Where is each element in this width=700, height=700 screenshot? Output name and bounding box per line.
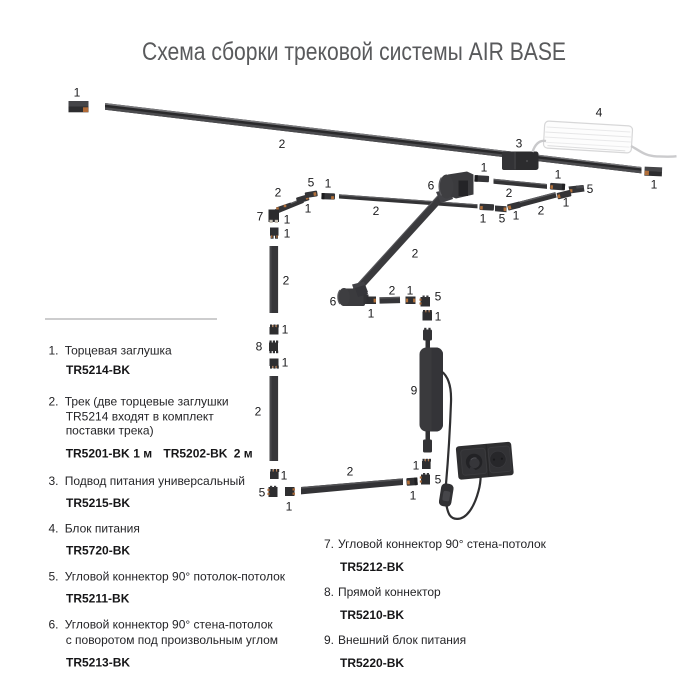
svg-text:Угловой коннектор 90° стена-по: Угловой коннектор 90° стена-потолок — [65, 618, 274, 632]
svg-text:Схема сборки трековой системы: Схема сборки трековой системы AIR BASE — [142, 38, 566, 66]
svg-text:6: 6 — [330, 295, 337, 309]
svg-text:5: 5 — [259, 486, 266, 500]
svg-text:1: 1 — [555, 168, 562, 182]
svg-text:Подвод питания универсальный: Подвод питания универсальный — [65, 474, 245, 488]
svg-text:4.: 4. — [49, 521, 59, 535]
svg-text:1: 1 — [480, 212, 487, 226]
svg-text:2.: 2. — [49, 395, 59, 409]
svg-text:2: 2 — [275, 186, 282, 200]
svg-text:2: 2 — [389, 284, 396, 298]
svg-text:TR5215-BK: TR5215-BK — [66, 496, 130, 510]
svg-text:2: 2 — [412, 247, 419, 261]
svg-text:1: 1 — [74, 86, 81, 100]
svg-text:Прямой коннектор: Прямой коннектор — [338, 585, 441, 599]
svg-text:7: 7 — [257, 210, 264, 224]
svg-text:2: 2 — [255, 405, 262, 419]
svg-text:1: 1 — [282, 323, 289, 337]
svg-text:TR5214-BK: TR5214-BK — [66, 363, 130, 377]
svg-text:1: 1 — [284, 227, 291, 241]
svg-text:1 м: 1 м — [133, 447, 152, 461]
svg-text:Блок питания: Блок питания — [65, 521, 140, 535]
svg-text:2: 2 — [279, 137, 286, 151]
svg-text:2: 2 — [283, 274, 290, 288]
svg-text:6.: 6. — [49, 618, 59, 632]
svg-text:2: 2 — [347, 465, 354, 479]
svg-text:TR5201-BK: TR5201-BK — [66, 447, 130, 461]
svg-text:1: 1 — [282, 356, 289, 370]
svg-text:2: 2 — [373, 204, 380, 218]
svg-text:8: 8 — [256, 340, 263, 354]
svg-text:2: 2 — [538, 204, 545, 218]
svg-text:TR5202-BK: TR5202-BK — [163, 447, 227, 461]
svg-text:Внешний блок питания: Внешний блок питания — [338, 633, 466, 647]
svg-text:5: 5 — [587, 182, 594, 196]
svg-text:1: 1 — [368, 307, 375, 321]
svg-text:6: 6 — [428, 179, 435, 193]
svg-text:TR5720-BK: TR5720-BK — [66, 544, 130, 558]
svg-text:Угловой коннектор 90° потолок-: Угловой коннектор 90° потолок-потолок — [65, 569, 286, 583]
svg-text:TR5212-BK: TR5212-BK — [340, 560, 404, 574]
svg-text:TR5211-BK: TR5211-BK — [66, 592, 130, 606]
svg-text:1: 1 — [325, 177, 332, 191]
svg-text:9: 9 — [411, 384, 418, 398]
svg-text:3: 3 — [516, 137, 523, 151]
svg-text:1: 1 — [563, 196, 570, 210]
svg-text:Угловой коннектор 90° стена-по: Угловой коннектор 90° стена-потолок — [338, 537, 547, 551]
svg-text:8.: 8. — [324, 585, 334, 599]
svg-text:1: 1 — [410, 489, 417, 503]
svg-text:TR5210-BK: TR5210-BK — [340, 608, 404, 622]
svg-text:1: 1 — [281, 469, 288, 483]
svg-text:TR5213-BK: TR5213-BK — [66, 656, 130, 670]
svg-text:3.: 3. — [49, 474, 59, 488]
svg-text:1: 1 — [435, 310, 442, 324]
svg-text:Трек (две торцевые заглушки: Трек (две торцевые заглушки — [65, 395, 229, 409]
svg-text:9.: 9. — [324, 633, 334, 647]
svg-text:5: 5 — [435, 473, 442, 487]
svg-text:1: 1 — [305, 202, 312, 216]
svg-text:4: 4 — [596, 106, 603, 120]
svg-text:1: 1 — [284, 213, 291, 227]
svg-text:TR5220-BK: TR5220-BK — [340, 656, 404, 670]
svg-text:поставки трека): поставки трека) — [66, 424, 154, 438]
svg-text:1.: 1. — [49, 343, 59, 357]
svg-text:5.: 5. — [49, 569, 59, 583]
svg-text:1: 1 — [286, 500, 293, 514]
svg-text:1: 1 — [413, 459, 420, 473]
svg-text:с поворотом под произвольным у: с поворотом под произвольным углом — [66, 633, 278, 647]
svg-text:5: 5 — [499, 212, 506, 226]
svg-text:1: 1 — [513, 209, 520, 223]
svg-text:TR5214 входят в комплект: TR5214 входят в комплект — [66, 409, 215, 423]
svg-text:1: 1 — [481, 161, 488, 175]
svg-text:2: 2 — [506, 186, 513, 200]
svg-text:5: 5 — [308, 176, 315, 190]
svg-text:5: 5 — [435, 290, 442, 304]
svg-text:Торцевая заглушка: Торцевая заглушка — [65, 343, 172, 357]
svg-text:2 м: 2 м — [234, 447, 253, 461]
svg-text:7.: 7. — [324, 537, 334, 551]
svg-text:1: 1 — [407, 284, 414, 298]
svg-text:1: 1 — [651, 178, 658, 192]
